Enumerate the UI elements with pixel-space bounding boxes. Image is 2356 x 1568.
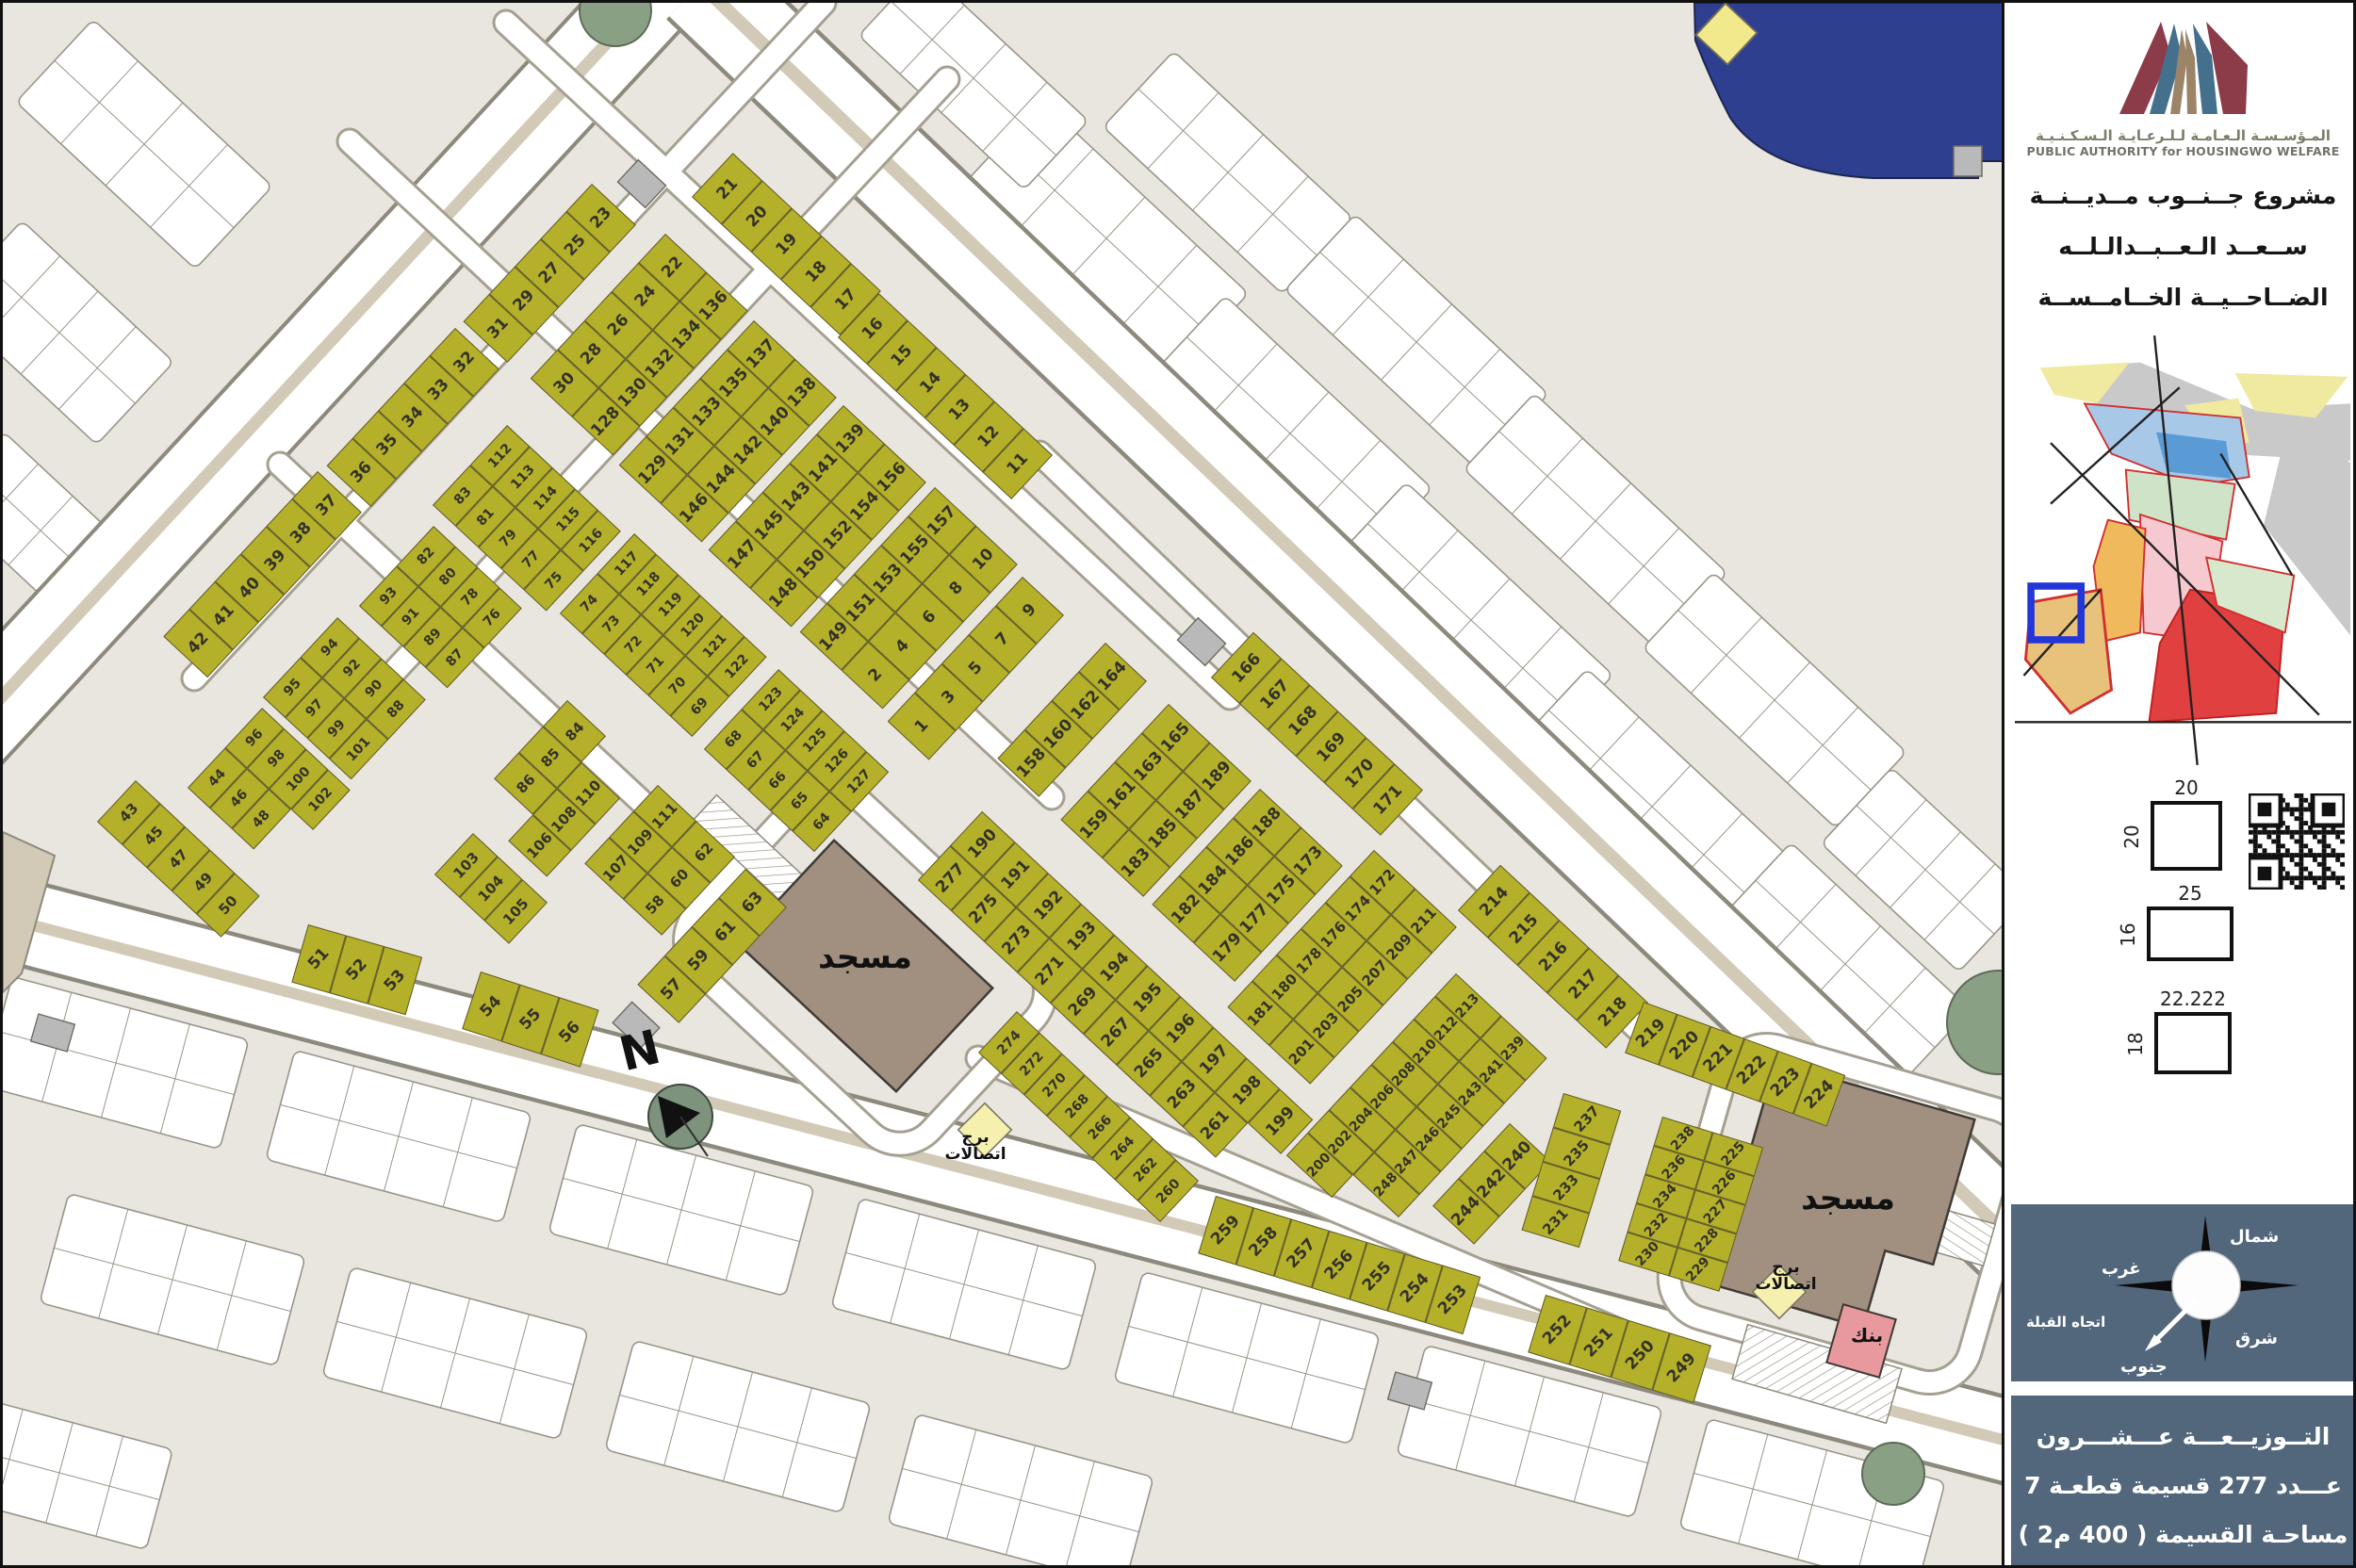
plot-dimension-diagrams: 20 20 25 16 22.222 18 (2007, 773, 2356, 1187)
dim-diagram-20x20 (2151, 801, 2222, 871)
bank-label: بنك (1829, 1326, 1905, 1346)
project-title-line-1: مشروع جــنــوب مــديــنــة (2007, 171, 2356, 221)
compass-east-label: شرق (2235, 1329, 2278, 1348)
authority-name-arabic: المـؤسـسـة الـعـامـة لـلـرعـايـة الـسـكـ… (2007, 127, 2356, 144)
north-letter: N (597, 1018, 682, 1084)
dim-diagram-25x16 (2147, 906, 2233, 961)
qr-code[interactable] (2249, 793, 2345, 890)
site-plan-map[interactable]: 2325272931323334353637383940414222136241… (3, 3, 2004, 1568)
dim-25-top: 25 (2147, 882, 2233, 905)
title-sidebar: المـؤسـسـة الـعـامـة لـلـرعـايـة الـسـكـ… (2007, 3, 2356, 1568)
compass-south-label: جنوب (2120, 1357, 2168, 1377)
site-plan-sheet: 2325272931323334353637383940414222136241… (0, 0, 2356, 1568)
mosque-2-label: مسجد (1768, 1183, 1928, 1217)
city-locator-map[interactable] (2015, 328, 2351, 773)
dim-22-top: 22.222 (2139, 988, 2247, 1010)
compass-qibla-label: اتجاه القبلة (2026, 1314, 2105, 1331)
map-labels: مسجدمسجدبنكبرج اتصالاتبرج اتصالاتN (3, 3, 2002, 1568)
mosque-1-label: مسجد (790, 941, 941, 975)
compass-north-label: شمال (2230, 1227, 2279, 1247)
distribution-info-panel: التــوزيــعـــة عـــشـــرون عـــدد 277 ق… (2011, 1396, 2355, 1568)
dim-diagram-22x18 (2154, 1012, 2232, 1074)
authority-name-english: PUBLIC AUTHORITY for HOUSINGWO WELFARE (2007, 144, 2356, 158)
compass-rose-icon (2011, 1204, 2355, 1381)
distribution-line-3: مساحـة القسيمة ( 400 م2 ) (2011, 1511, 2355, 1560)
authority-logo-icon (2099, 8, 2268, 120)
compass-panel: شمال غرب شرق جنوب اتجاه القبلة (2011, 1204, 2355, 1381)
distribution-line-2: عـــدد 277 قسيمة قطعـة 7 (2011, 1462, 2355, 1511)
telecom-tower-1-label: برج اتصالات (909, 1130, 1041, 1164)
project-title-line-2: ســعــد الـعــبــدالـلــه (2007, 221, 2356, 272)
authority-logo-block: المـؤسـسـة الـعـامـة لـلـرعـايـة الـسـكـ… (2007, 8, 2356, 158)
dim-16-left: 16 (2117, 916, 2139, 954)
distribution-line-1: التــوزيــعـــة عـــشـــرون (2011, 1413, 2355, 1462)
compass-west-label: غرب (2102, 1259, 2141, 1279)
dim-18-left: 18 (2124, 1025, 2147, 1063)
dim-20-top: 20 (2151, 776, 2222, 799)
project-title-line-3: الضــاحــيــة الخــامــســة (2007, 272, 2356, 323)
project-title: مشروع جــنــوب مــديــنــة ســعــد الـعـ… (2007, 171, 2356, 323)
dim-20-left: 20 (2120, 818, 2143, 856)
telecom-tower-2-label: برج اتصالات (1720, 1260, 1852, 1294)
